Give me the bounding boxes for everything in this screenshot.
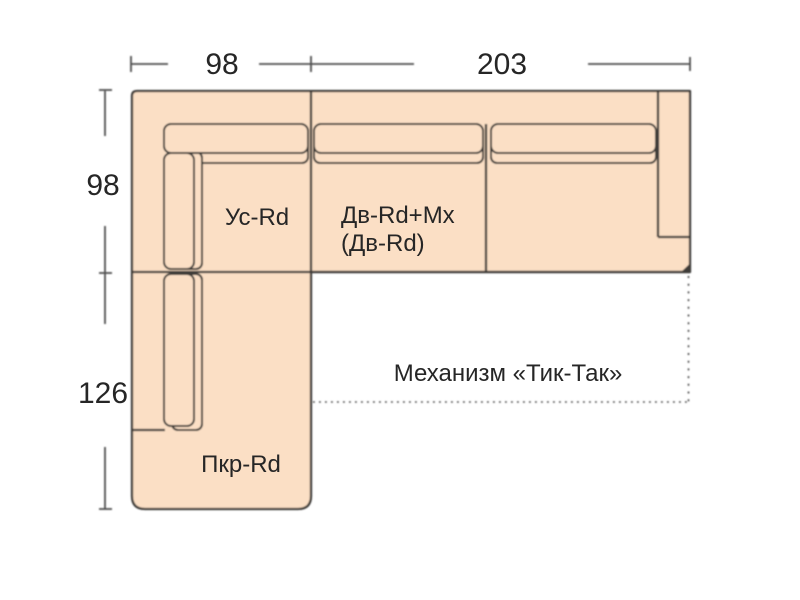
svg-text:Ус-Rd: Ус-Rd: [225, 204, 289, 231]
svg-text:98: 98: [205, 48, 238, 81]
svg-text:(Дв-Rd): (Дв-Rd): [341, 230, 425, 257]
svg-text:203: 203: [477, 48, 527, 81]
svg-text:98: 98: [86, 169, 119, 202]
svg-text:Механизм «Тик-Так»: Механизм «Тик-Так»: [394, 360, 623, 387]
svg-text:Пкр-Rd: Пкр-Rd: [201, 451, 281, 478]
svg-text:Дв-Rd+Мх: Дв-Rd+Мх: [341, 202, 455, 229]
svg-text:126: 126: [78, 377, 128, 410]
